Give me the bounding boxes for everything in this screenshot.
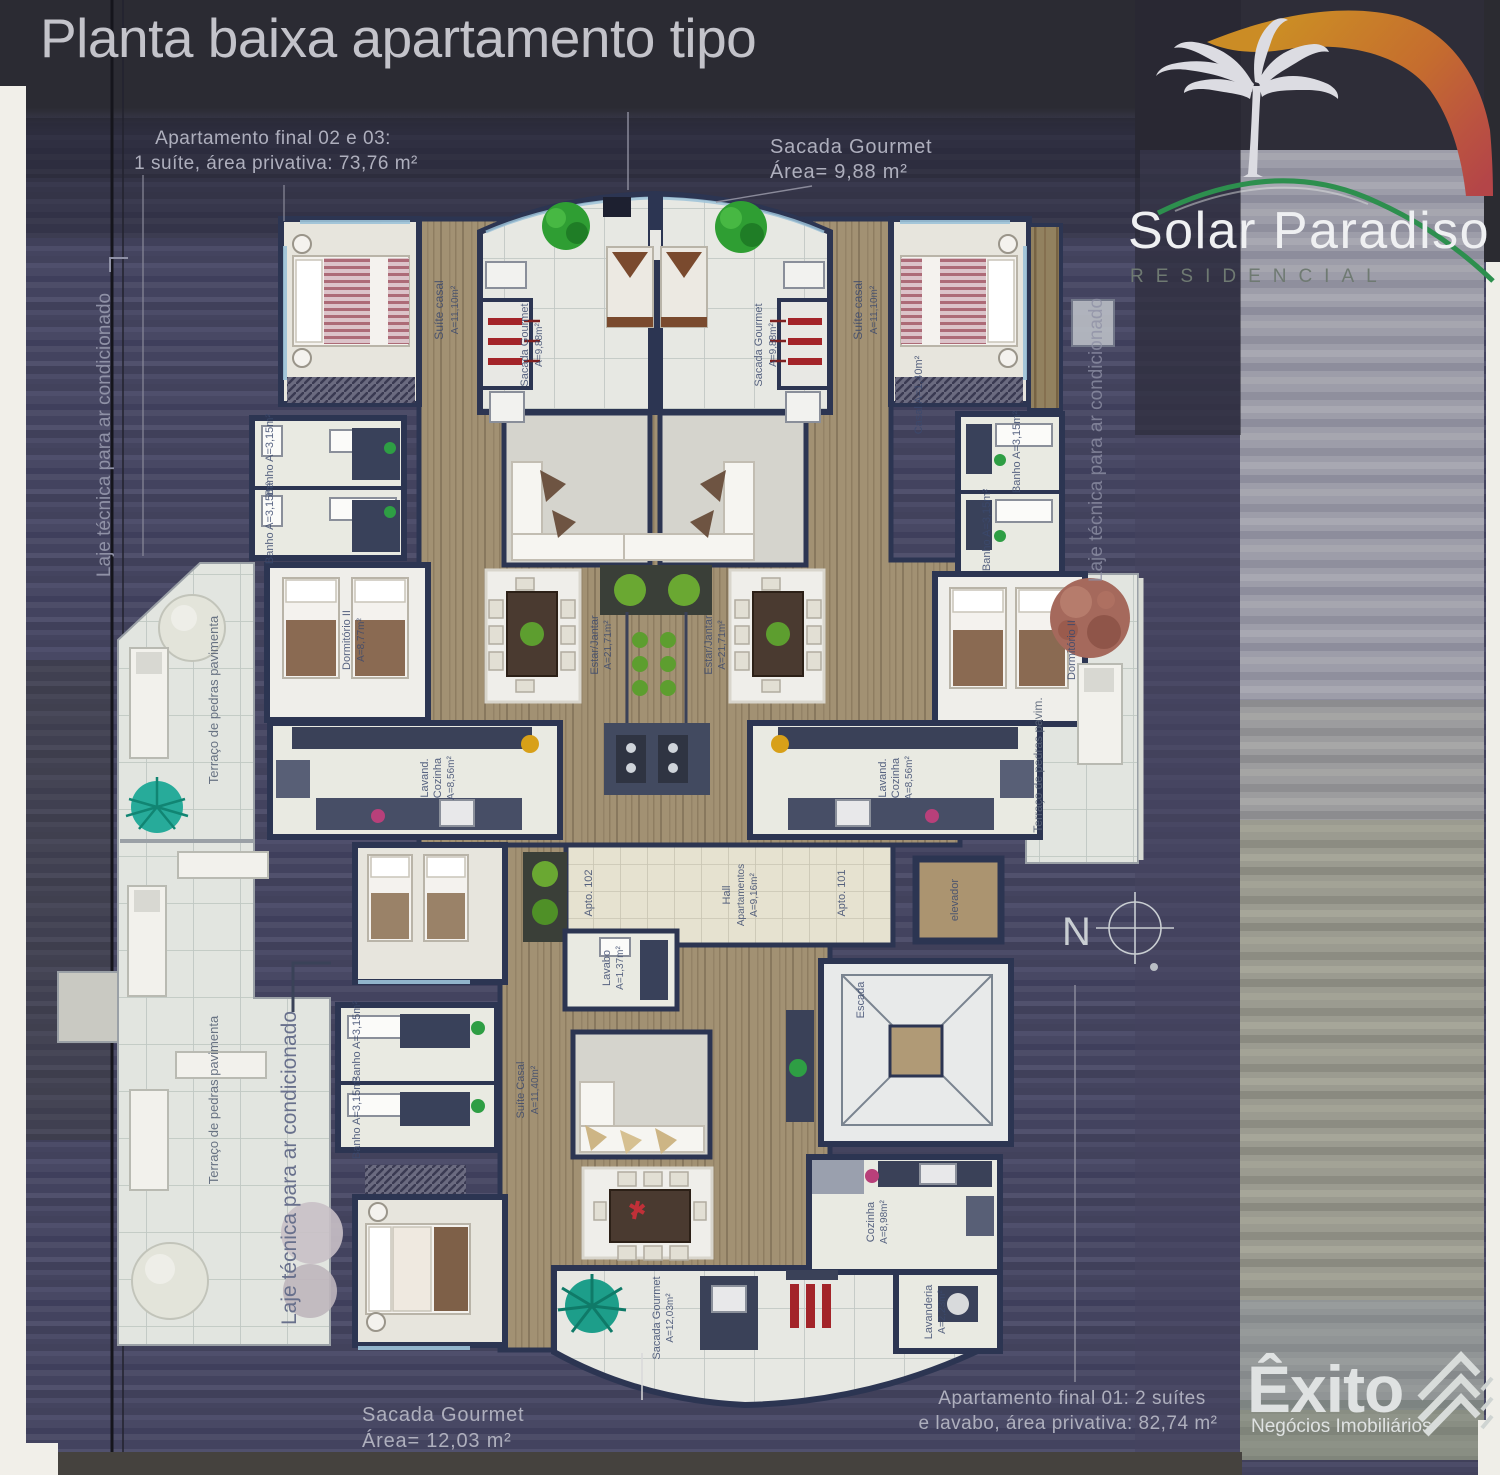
svg-text:Terraço de pedras pavim.: Terraço de pedras pavim. (1031, 697, 1045, 832)
svg-text:A=11,40m²: A=11,40m² (530, 1065, 541, 1114)
svg-text:Apto. 101: Apto. 101 (836, 869, 848, 916)
svg-text:Cozinha: Cozinha (890, 757, 902, 798)
svg-text:Banho A=3,15m²: Banho A=3,15m² (981, 489, 993, 572)
svg-text:Planta baixa apartamento tipo: Planta baixa apartamento tipo (40, 7, 756, 69)
svg-text:Escada: Escada (855, 981, 867, 1019)
svg-text:A=8,77m²: A=8,77m² (356, 618, 367, 662)
svg-text:N: N (1062, 910, 1091, 954)
svg-text:A=8,56m²: A=8,56m² (446, 756, 457, 800)
svg-text:Êxito: Êxito (1247, 1352, 1403, 1426)
svg-text:Apto. 102: Apto. 102 (583, 869, 595, 916)
svg-text:Sacada Gourmet: Sacada Gourmet (519, 303, 531, 386)
svg-text:Dormitório II: Dormitório II (1066, 620, 1078, 680)
svg-text:A=21,71m²: A=21,71m² (717, 620, 728, 670)
svg-text:Laje técnica para ar condicion: Laje técnica para ar condicionado (278, 1011, 301, 1325)
svg-text:Casal A=1,40m²: Casal A=1,40m² (913, 355, 925, 434)
svg-text:A=8,98m²: A=8,98m² (879, 1200, 890, 1244)
svg-text:1 suíte, área privativa: 73,76: 1 suíte, área privativa: 73,76 m² (134, 153, 418, 174)
svg-text:Sacada Gourmet: Sacada Gourmet (753, 303, 765, 386)
svg-text:elevador: elevador (949, 879, 961, 922)
svg-text:e lavabo, área privativa: 82,7: e lavabo, área privativa: 82,74 m² (919, 1413, 1218, 1434)
svg-text:A=12,03m²: A=12,03m² (665, 1293, 676, 1343)
svg-text:A=21,71m²: A=21,71m² (603, 620, 614, 670)
svg-text:Banho A=3,15m²: Banho A=3,15m² (351, 1077, 363, 1160)
svg-text:Banho A=3,15m²: Banho A=3,15m² (351, 1001, 363, 1084)
svg-text:Cozinha: Cozinha (865, 1201, 877, 1242)
svg-text:Laje técnica para ar condicion: Laje técnica para ar condicionado (1086, 298, 1107, 582)
svg-text:Negócios Imobiliários: Negócios Imobiliários (1251, 1416, 1432, 1437)
svg-text:Lavand.: Lavand. (419, 758, 431, 797)
svg-text:Sacada Gourmet: Sacada Gourmet (362, 1404, 524, 1426)
svg-text:Solar Paradiso: Solar Paradiso (1128, 202, 1490, 260)
svg-text:Terraço de pedras pavimenta: Terraço de pedras pavimenta (206, 615, 221, 784)
svg-text:Estar/Jantar: Estar/Jantar (703, 615, 715, 675)
svg-text:Cozinha: Cozinha (432, 757, 444, 798)
svg-text:Suíte casal: Suíte casal (432, 280, 446, 339)
svg-text:A=11,10m²: A=11,10m² (450, 285, 461, 334)
svg-text:Lavand.: Lavand. (877, 758, 889, 797)
svg-text:Apartamento final 02 e 03:: Apartamento final 02 e 03: (155, 128, 391, 149)
svg-text:A=2,23m²: A=2,23m² (937, 1290, 948, 1334)
svg-text:Hall: Hall (721, 886, 733, 905)
svg-text:A=1,37m²: A=1,37m² (615, 946, 626, 990)
svg-text:A=8,56m²: A=8,56m² (904, 756, 915, 800)
svg-text:Lavanderia: Lavanderia (923, 1284, 935, 1339)
svg-text:Banho A=3,15m²: Banho A=3,15m² (264, 482, 276, 565)
svg-text:Área= 9,88 m²: Área= 9,88 m² (770, 160, 908, 183)
svg-text:A=9,16m²: A=9,16m² (749, 873, 760, 917)
svg-text:A=11,10m²: A=11,10m² (869, 285, 880, 334)
svg-text:RESIDENCIAL: RESIDENCIAL (1130, 266, 1389, 287)
svg-text:Apartamento final 01: 2 suítes: Apartamento final 01: 2 suítes (938, 1388, 1205, 1409)
svg-text:A=9,88m²: A=9,88m² (534, 323, 545, 367)
svg-text:Área= 12,03 m²: Área= 12,03 m² (362, 1429, 512, 1452)
svg-text:Suíte Casal: Suíte Casal (515, 1062, 527, 1119)
svg-text:Dormitório II: Dormitório II (341, 610, 353, 670)
svg-text:Estar/Jantar: Estar/Jantar (589, 615, 601, 675)
svg-text:Lavabo: Lavabo (601, 950, 613, 986)
svg-text:Apartamentos: Apartamentos (736, 864, 747, 926)
svg-text:Sacada Gourmet: Sacada Gourmet (770, 136, 932, 158)
svg-text:A=9,88m²: A=9,88m² (768, 323, 779, 367)
svg-text:Laje técnica para ar condicion: Laje técnica para ar condicionado (94, 293, 115, 577)
svg-text:Suíte casal: Suíte casal (851, 280, 865, 339)
svg-text:Sacada Gourmet: Sacada Gourmet (651, 1276, 663, 1359)
svg-text:Terraço de pedras pavimenta: Terraço de pedras pavimenta (206, 1015, 221, 1184)
svg-text:Banho A=3,15m²: Banho A=3,15m² (1011, 411, 1023, 494)
